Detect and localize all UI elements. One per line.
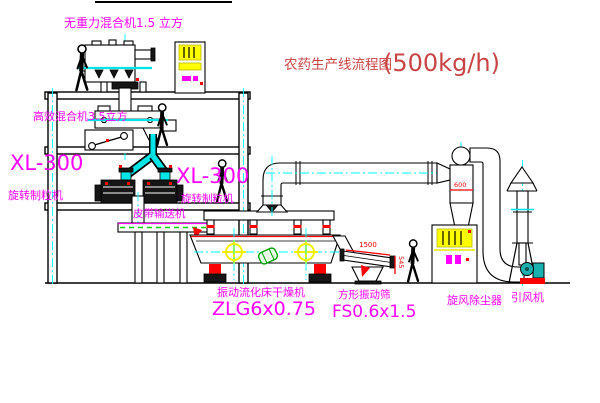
mid-mixer-label: 高效混合机3.5立方 — [33, 109, 128, 123]
conveyor-leg — [180, 232, 187, 283]
screen-height-dim: 545 — [397, 256, 405, 268]
induced-draft-fan — [520, 263, 545, 285]
cyclone-to-fan-duct — [470, 148, 524, 282]
conveyor-label: 皮带输送机 — [133, 207, 186, 220]
panel-graphic — [179, 45, 201, 60]
screen-name: 方形振动筛 — [338, 288, 391, 301]
cyclone-label: 旋风除尘器 — [447, 293, 502, 307]
panel-graphic — [446, 255, 452, 264]
fluid-bed-dryer — [190, 211, 344, 282]
floor-slab-top — [45, 92, 250, 99]
page-title-capacity: (500kg/h) — [383, 49, 500, 77]
granulator-left — [95, 165, 135, 203]
person — [408, 240, 418, 281]
dryer-foot — [204, 264, 331, 282]
fan-base — [520, 278, 545, 284]
vibrating-screen: 1500 545 — [333, 236, 405, 284]
dryer-name: 振动流化床干燥机 — [217, 285, 305, 299]
top-mixer-label: 无重力混合机1.5 立方 — [64, 15, 183, 30]
cyclone-size-dim: 600 — [454, 181, 466, 189]
exhaust-duct — [257, 156, 452, 218]
flow-diagram: 600 1500 545 — [0, 0, 600, 403]
granulator-left-name: 旋转制粒机 — [8, 188, 63, 202]
screen-length-dim: 1500 — [359, 241, 377, 249]
cyclone-outlet — [452, 147, 470, 165]
control-cabinet-ground — [432, 225, 477, 283]
panel-graphic — [182, 76, 191, 81]
dryer-model: ZLG6x0.75 — [212, 298, 316, 320]
granulator-right-model: XL-300 — [176, 164, 249, 188]
page-title: 农药生产线流程图 — [284, 57, 392, 73]
conveyor-leg — [157, 232, 164, 283]
flow-diagram-page: 600 1500 545 — [0, 0, 600, 403]
screen-model: FS0.6x1.5 — [332, 302, 416, 322]
fan-label: 引风机 — [511, 290, 544, 304]
cyclone-inlet — [437, 163, 450, 183]
stack-cap — [511, 167, 533, 183]
control-cabinet-top — [175, 42, 205, 93]
conveyor-leg — [135, 232, 142, 283]
granulator-left-model: XL-300 — [10, 151, 83, 175]
granulator-right-name: 旋转制粒机 — [181, 192, 234, 205]
